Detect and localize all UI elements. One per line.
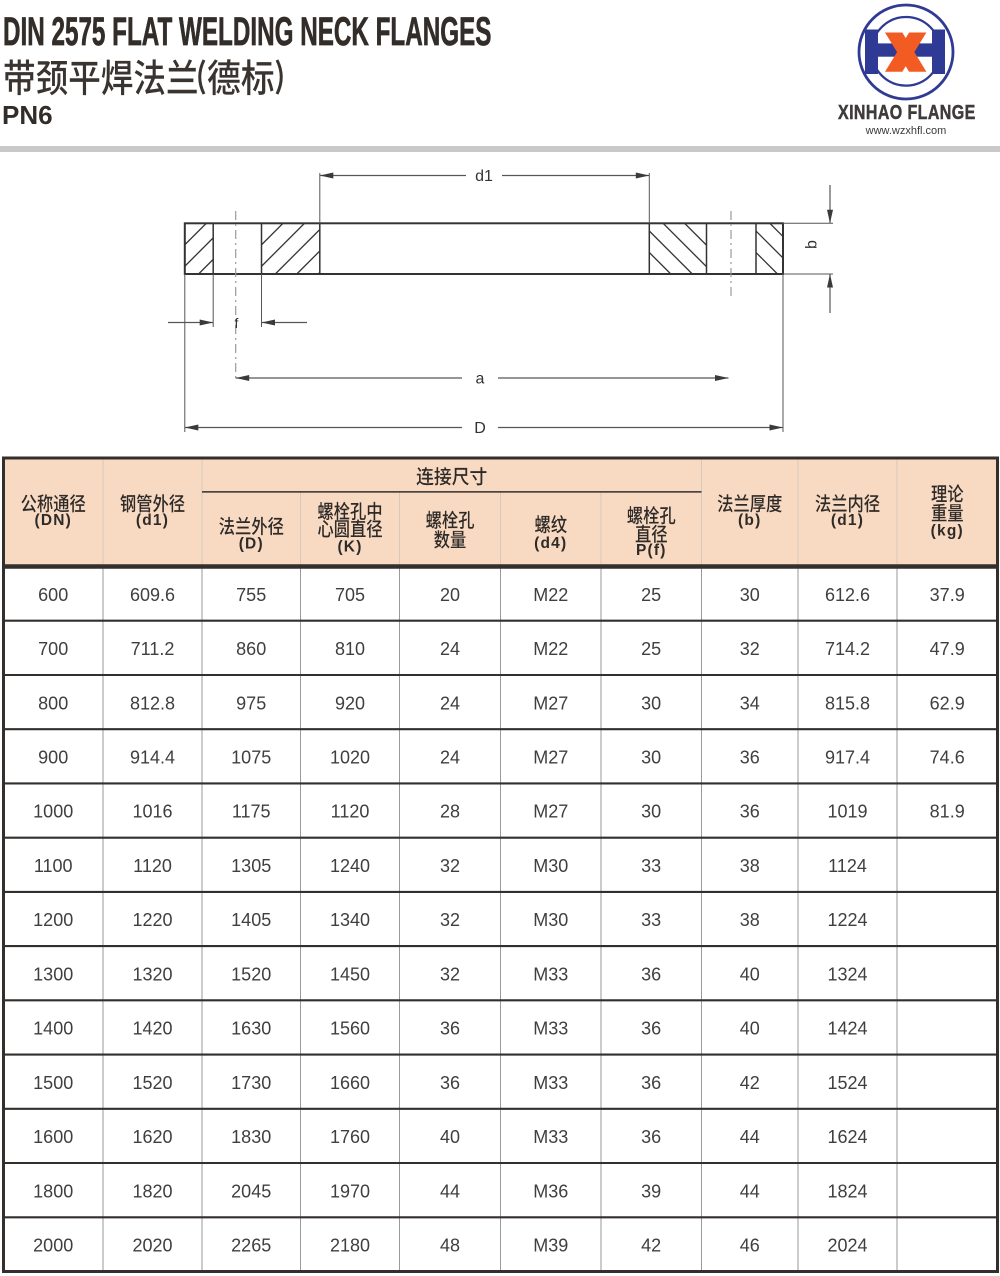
svg-text:40: 40 [440,1127,460,1147]
svg-text:24: 24 [440,693,460,713]
svg-text:1305: 1305 [231,856,271,876]
svg-text:1400: 1400 [33,1019,73,1039]
svg-text:1075: 1075 [231,748,271,768]
svg-text:2020: 2020 [132,1236,172,1256]
svg-text:1970: 1970 [330,1181,370,1201]
svg-text:1600: 1600 [33,1127,73,1147]
svg-text:1120: 1120 [331,802,370,822]
svg-text:38: 38 [740,856,760,876]
svg-text:40: 40 [740,1019,760,1039]
svg-text:812.8: 812.8 [130,693,175,713]
svg-text:2045: 2045 [231,1181,271,1201]
svg-text:44: 44 [740,1181,760,1201]
svg-text:32: 32 [740,639,760,659]
svg-text:62.9: 62.9 [930,693,965,713]
svg-text:705: 705 [335,585,365,605]
svg-text:(D): (D) [239,535,264,552]
svg-text:M30: M30 [533,856,568,876]
svg-text:M30: M30 [533,910,568,930]
svg-text:1224: 1224 [827,910,867,930]
svg-text:1760: 1760 [330,1127,370,1147]
svg-text:32: 32 [440,964,460,984]
svg-text:M33: M33 [533,1073,568,1093]
svg-text:(d1): (d1) [136,512,169,529]
svg-text:M22: M22 [533,639,568,659]
svg-text:46: 46 [740,1236,760,1256]
svg-text:815.8: 815.8 [825,693,870,713]
svg-text:1800: 1800 [33,1181,73,1201]
svg-text:36: 36 [641,1127,661,1147]
svg-text:1660: 1660 [330,1073,370,1093]
svg-text:37.9: 37.9 [930,585,965,605]
svg-text:1240: 1240 [330,856,370,876]
svg-text:1420: 1420 [132,1019,172,1039]
svg-text:36: 36 [740,802,760,822]
svg-text:1520: 1520 [231,964,271,984]
svg-text:1524: 1524 [827,1073,867,1093]
svg-text:M33: M33 [533,1127,568,1147]
svg-text:33: 33 [641,856,661,876]
svg-text:1200: 1200 [33,910,73,930]
svg-text:1000: 1000 [33,802,73,822]
svg-text:1830: 1830 [231,1127,271,1147]
svg-text:36: 36 [440,1073,460,1093]
svg-text:1175: 1175 [232,802,271,822]
svg-text:34: 34 [740,693,760,713]
svg-text:M22: M22 [533,585,568,605]
svg-text:1220: 1220 [132,910,172,930]
svg-text:2180: 2180 [330,1236,370,1256]
svg-text:44: 44 [440,1181,460,1201]
svg-text:24: 24 [440,639,460,659]
svg-text:1624: 1624 [827,1127,867,1147]
svg-text:25: 25 [641,639,661,659]
svg-text:2024: 2024 [827,1236,867,1256]
svg-text:920: 920 [335,693,365,713]
svg-text:2000: 2000 [33,1236,73,1256]
svg-text:1100: 1100 [34,856,73,876]
svg-text:36: 36 [641,1019,661,1039]
svg-text:M27: M27 [533,802,568,822]
svg-text:1630: 1630 [231,1019,271,1039]
svg-text:900: 900 [38,748,68,768]
svg-text:33: 33 [641,910,661,930]
svg-text:36: 36 [641,964,661,984]
svg-text:1124: 1124 [828,856,867,876]
svg-text:M33: M33 [533,964,568,984]
svg-text:25: 25 [641,585,661,605]
svg-text:700: 700 [38,639,68,659]
svg-text:30: 30 [641,693,661,713]
svg-text:81.9: 81.9 [930,802,965,822]
svg-text:48: 48 [440,1236,460,1256]
svg-text:800: 800 [38,693,68,713]
svg-text:914.4: 914.4 [130,748,175,768]
svg-text:M36: M36 [533,1181,568,1201]
svg-text:1340: 1340 [330,910,370,930]
svg-text:42: 42 [641,1236,661,1256]
svg-text:M39: M39 [533,1236,568,1256]
svg-text:609.6: 609.6 [130,585,175,605]
svg-text:36: 36 [440,1019,460,1039]
svg-text:(b): (b) [738,512,761,529]
svg-text:1500: 1500 [33,1073,73,1093]
svg-text:M33: M33 [533,1019,568,1039]
svg-text:714.2: 714.2 [825,639,870,659]
svg-text:(kg): (kg) [931,523,964,540]
svg-text:30: 30 [740,585,760,605]
svg-text:1120: 1120 [133,856,172,876]
svg-text:(K): (K) [337,539,362,556]
svg-text:47.9: 47.9 [930,639,965,659]
svg-text:M27: M27 [533,748,568,768]
svg-text:600: 600 [38,585,68,605]
svg-text:1820: 1820 [132,1181,172,1201]
svg-text:44: 44 [740,1127,760,1147]
svg-text:1300: 1300 [33,964,73,984]
svg-text:975: 975 [236,693,266,713]
svg-text:24: 24 [440,748,460,768]
svg-text:1320: 1320 [132,964,172,984]
svg-text:1324: 1324 [827,964,867,984]
svg-text:1620: 1620 [132,1127,172,1147]
svg-text:39: 39 [641,1181,661,1201]
svg-text:P(f): P(f) [636,542,667,559]
svg-text:38: 38 [740,910,760,930]
svg-text:711.2: 711.2 [131,639,175,659]
svg-text:1019: 1019 [827,802,867,822]
svg-text:860: 860 [236,639,266,659]
svg-text:810: 810 [335,639,365,659]
svg-text:755: 755 [236,585,266,605]
svg-text:40: 40 [740,964,760,984]
svg-text:36: 36 [740,748,760,768]
svg-text:28: 28 [440,802,460,822]
svg-text:1020: 1020 [330,748,370,768]
svg-text:42: 42 [740,1073,760,1093]
svg-text:1424: 1424 [827,1019,867,1039]
svg-text:1450: 1450 [330,964,370,984]
svg-text:1016: 1016 [132,802,172,822]
svg-text:32: 32 [440,910,460,930]
svg-text:32: 32 [440,856,460,876]
svg-text:1730: 1730 [231,1073,271,1093]
svg-text:1405: 1405 [231,910,271,930]
svg-text:20: 20 [440,585,460,605]
svg-text:M27: M27 [533,693,568,713]
svg-text:(d4): (d4) [534,535,567,552]
svg-text:1520: 1520 [132,1073,172,1093]
svg-text:612.6: 612.6 [825,585,870,605]
svg-text:74.6: 74.6 [930,748,965,768]
svg-text:1824: 1824 [827,1181,867,1201]
svg-text:917.4: 917.4 [825,748,870,768]
svg-text:2265: 2265 [231,1236,271,1256]
svg-text:30: 30 [641,802,661,822]
svg-text:(DN): (DN) [34,512,72,529]
svg-text:30: 30 [641,748,661,768]
svg-text:(d1): (d1) [831,512,864,529]
svg-text:36: 36 [641,1073,661,1093]
svg-text:1560: 1560 [330,1019,370,1039]
